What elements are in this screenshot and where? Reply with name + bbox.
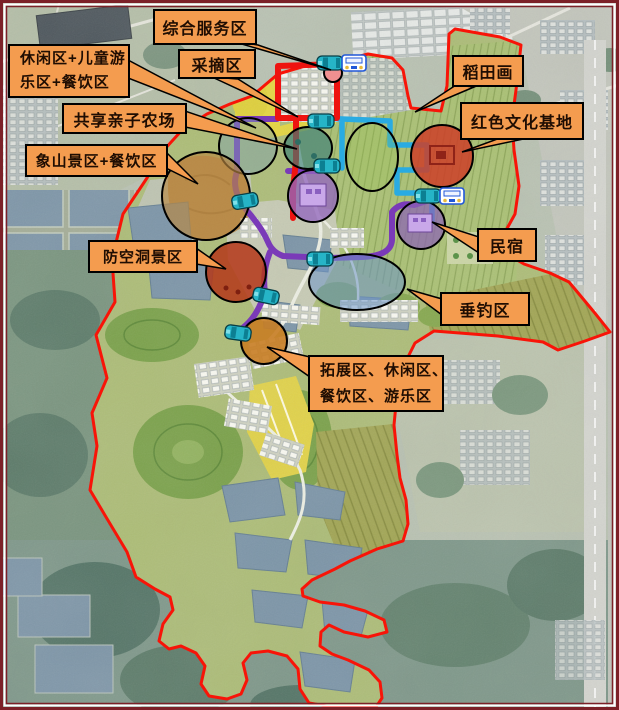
callout-shared-family-farm: 共享亲子农场	[62, 103, 187, 134]
shuttle-car-icon	[224, 324, 252, 341]
callout-expansion-leisure-dining-amusement-area: 拓展区、休闲区、 餐饮区、游乐区	[308, 355, 444, 412]
callout-xiangshan-scenic-dining-area: 象山景区+餐饮区	[25, 144, 168, 177]
callout-comprehensive-service-area: 综合服务区	[153, 9, 257, 45]
callout-air-raid-shelter-scenic-area: 防空洞景区	[88, 240, 198, 273]
shuttle-car-icon	[314, 159, 340, 173]
callout-leisure-children-dining-area: 休闲区+儿童游 乐区+餐饮区	[8, 44, 130, 98]
callout-red-culture-base: 红色文化基地	[460, 102, 584, 140]
shuttle-car-icon	[307, 252, 333, 266]
callout-fishing-area: 垂钓区	[440, 292, 530, 326]
car-front-icon	[342, 55, 366, 71]
shuttle-car-icon	[308, 114, 334, 128]
shuttle-car-icon	[317, 56, 343, 70]
callout-homestay: 民宿	[477, 228, 537, 262]
callout-picking-area: 采摘区	[178, 49, 256, 79]
car-front-icon	[440, 188, 464, 204]
zone-marker-rice-paddy-art	[346, 123, 398, 191]
shuttle-car-icon	[415, 189, 441, 203]
callout-rice-paddy-art: 稻田画	[452, 55, 524, 87]
planning-map: 综合服务区 采摘区 休闲区+儿童游 乐区+餐饮区 共享亲子农场 象山景区+餐饮区…	[0, 0, 619, 710]
